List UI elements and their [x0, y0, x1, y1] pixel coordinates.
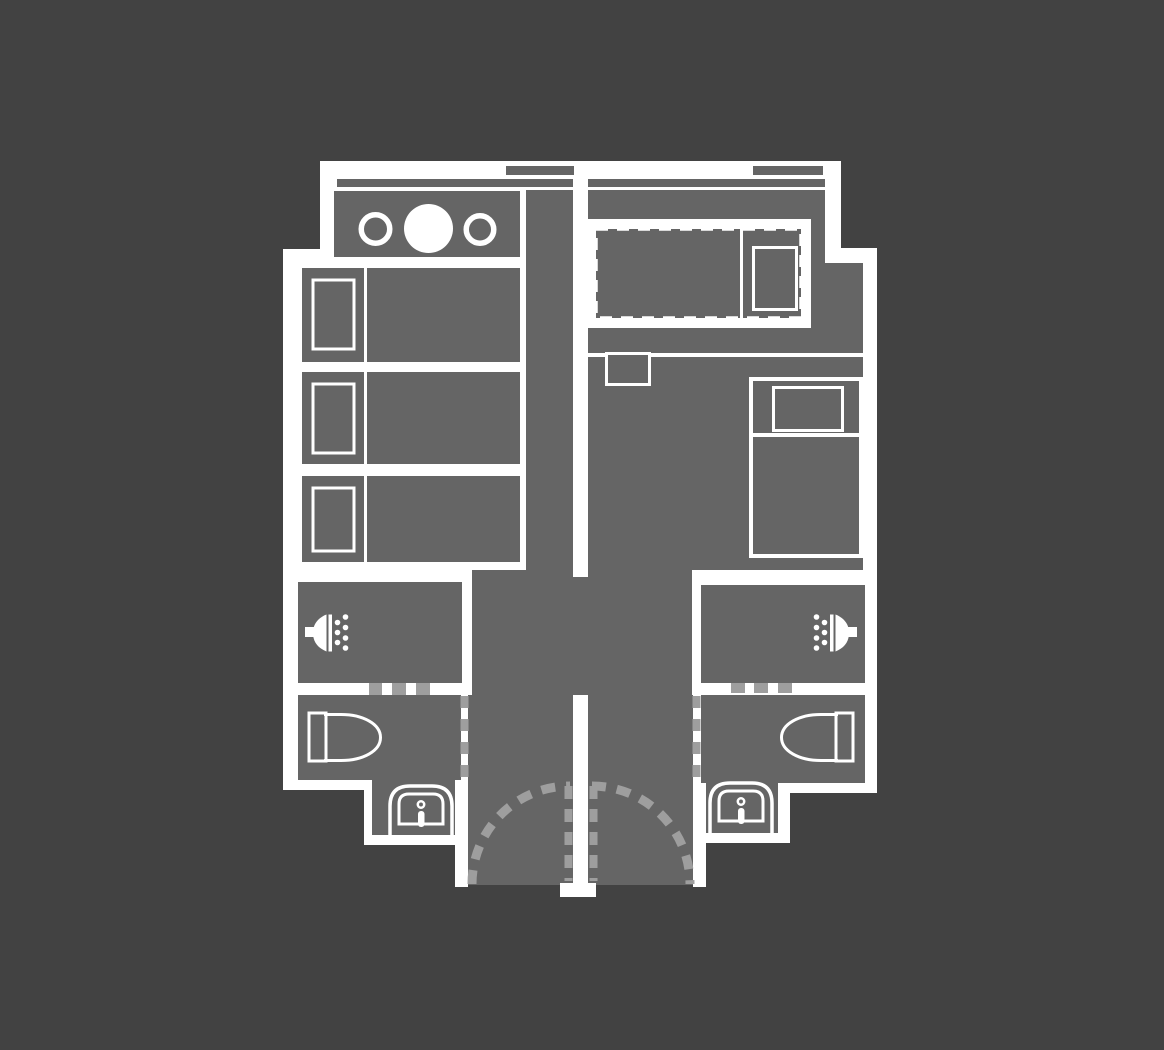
left-shower-drop-b2 [343, 625, 349, 631]
left-shower-drop-b1 [343, 614, 349, 620]
right-shower-drop-b3 [814, 635, 820, 641]
left-sink-faucet-stem [418, 811, 425, 827]
left-bed-2-divider [364, 372, 367, 464]
right-shower-drop-b1 [814, 614, 820, 620]
left-shower-door-dash-2 [392, 683, 406, 695]
window-tab-right [753, 166, 823, 175]
center-wall-foot [560, 883, 596, 897]
right-entry-wall-stub [693, 783, 706, 887]
window-tab-left [506, 166, 574, 175]
window-strip-right [588, 179, 825, 187]
right-shower-drop-b4 [814, 645, 820, 651]
stove-burner-disc-center [404, 204, 453, 253]
center-wall-lower [573, 695, 588, 887]
right-shower-drop-a1 [822, 620, 828, 626]
left-shower-drop-b4 [343, 645, 349, 651]
floor-plan-drawing [0, 0, 1164, 1050]
dashed-bed-outline [596, 229, 801, 318]
right-bed-divider [753, 433, 859, 437]
dashed-bed-divider [740, 229, 743, 318]
center-wall-upper [573, 190, 588, 577]
right-sink-faucet-stem [738, 808, 745, 824]
right-shower-door-dash-2 [754, 683, 768, 693]
window-strip-left [337, 179, 573, 187]
left-shower-door-dash-3 [416, 683, 430, 695]
right-shower-door-dash-1 [731, 683, 745, 693]
left-shower-drop-a3 [335, 640, 341, 646]
left-shower-drop-a1 [335, 620, 341, 626]
right-room-nightstand [607, 354, 650, 385]
left-entry-wall-stub [455, 783, 468, 887]
right-shower-drop-a2 [822, 630, 828, 636]
vestibule-upper-floor [472, 570, 692, 695]
left-bed-1-divider [364, 268, 367, 362]
floor-plan-canvas [0, 0, 1164, 1050]
left-shower-drop-b3 [343, 635, 349, 641]
left-shower-door-dash-1 [369, 683, 382, 695]
left-bed-3-divider [364, 476, 367, 562]
left-shower-head-plate [329, 615, 333, 652]
left-bed-2 [302, 372, 520, 464]
left-hallway-floor [526, 190, 573, 570]
right-shower-door-dash-3 [778, 683, 792, 693]
right-shower-drop-b2 [814, 625, 820, 631]
right-shower-drop-a3 [822, 640, 828, 646]
right-toilet-room-bottom-wall [790, 783, 877, 793]
left-shower-drop-a2 [335, 630, 341, 636]
right-shower-head-plate [830, 615, 834, 652]
